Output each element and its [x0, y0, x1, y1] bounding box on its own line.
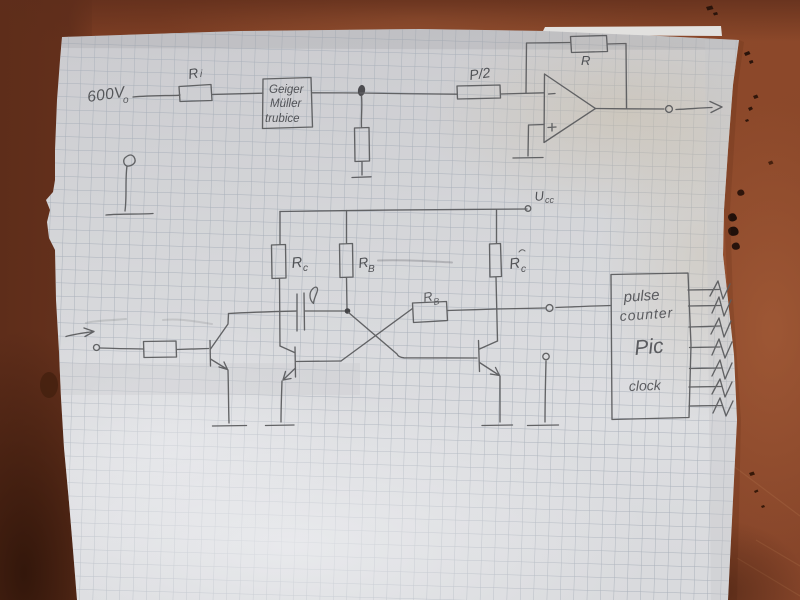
- svg-text:B: B: [368, 264, 375, 275]
- svg-text:c: c: [303, 263, 308, 274]
- svg-text:R: R: [291, 254, 304, 272]
- svg-text:clock: clock: [629, 377, 662, 394]
- svg-text:cc: cc: [545, 195, 555, 205]
- svg-text:Pic: Pic: [633, 334, 665, 359]
- svg-text:P/2: P/2: [468, 64, 491, 83]
- svg-text:o: o: [123, 95, 129, 106]
- svg-text:pulse: pulse: [622, 287, 660, 307]
- svg-text:c: c: [521, 264, 526, 275]
- svg-text:Müller: Müller: [270, 98, 302, 110]
- svg-text:trubice: trubice: [265, 113, 300, 125]
- svg-text:Geiger: Geiger: [269, 84, 305, 96]
- svg-text:R: R: [581, 53, 590, 68]
